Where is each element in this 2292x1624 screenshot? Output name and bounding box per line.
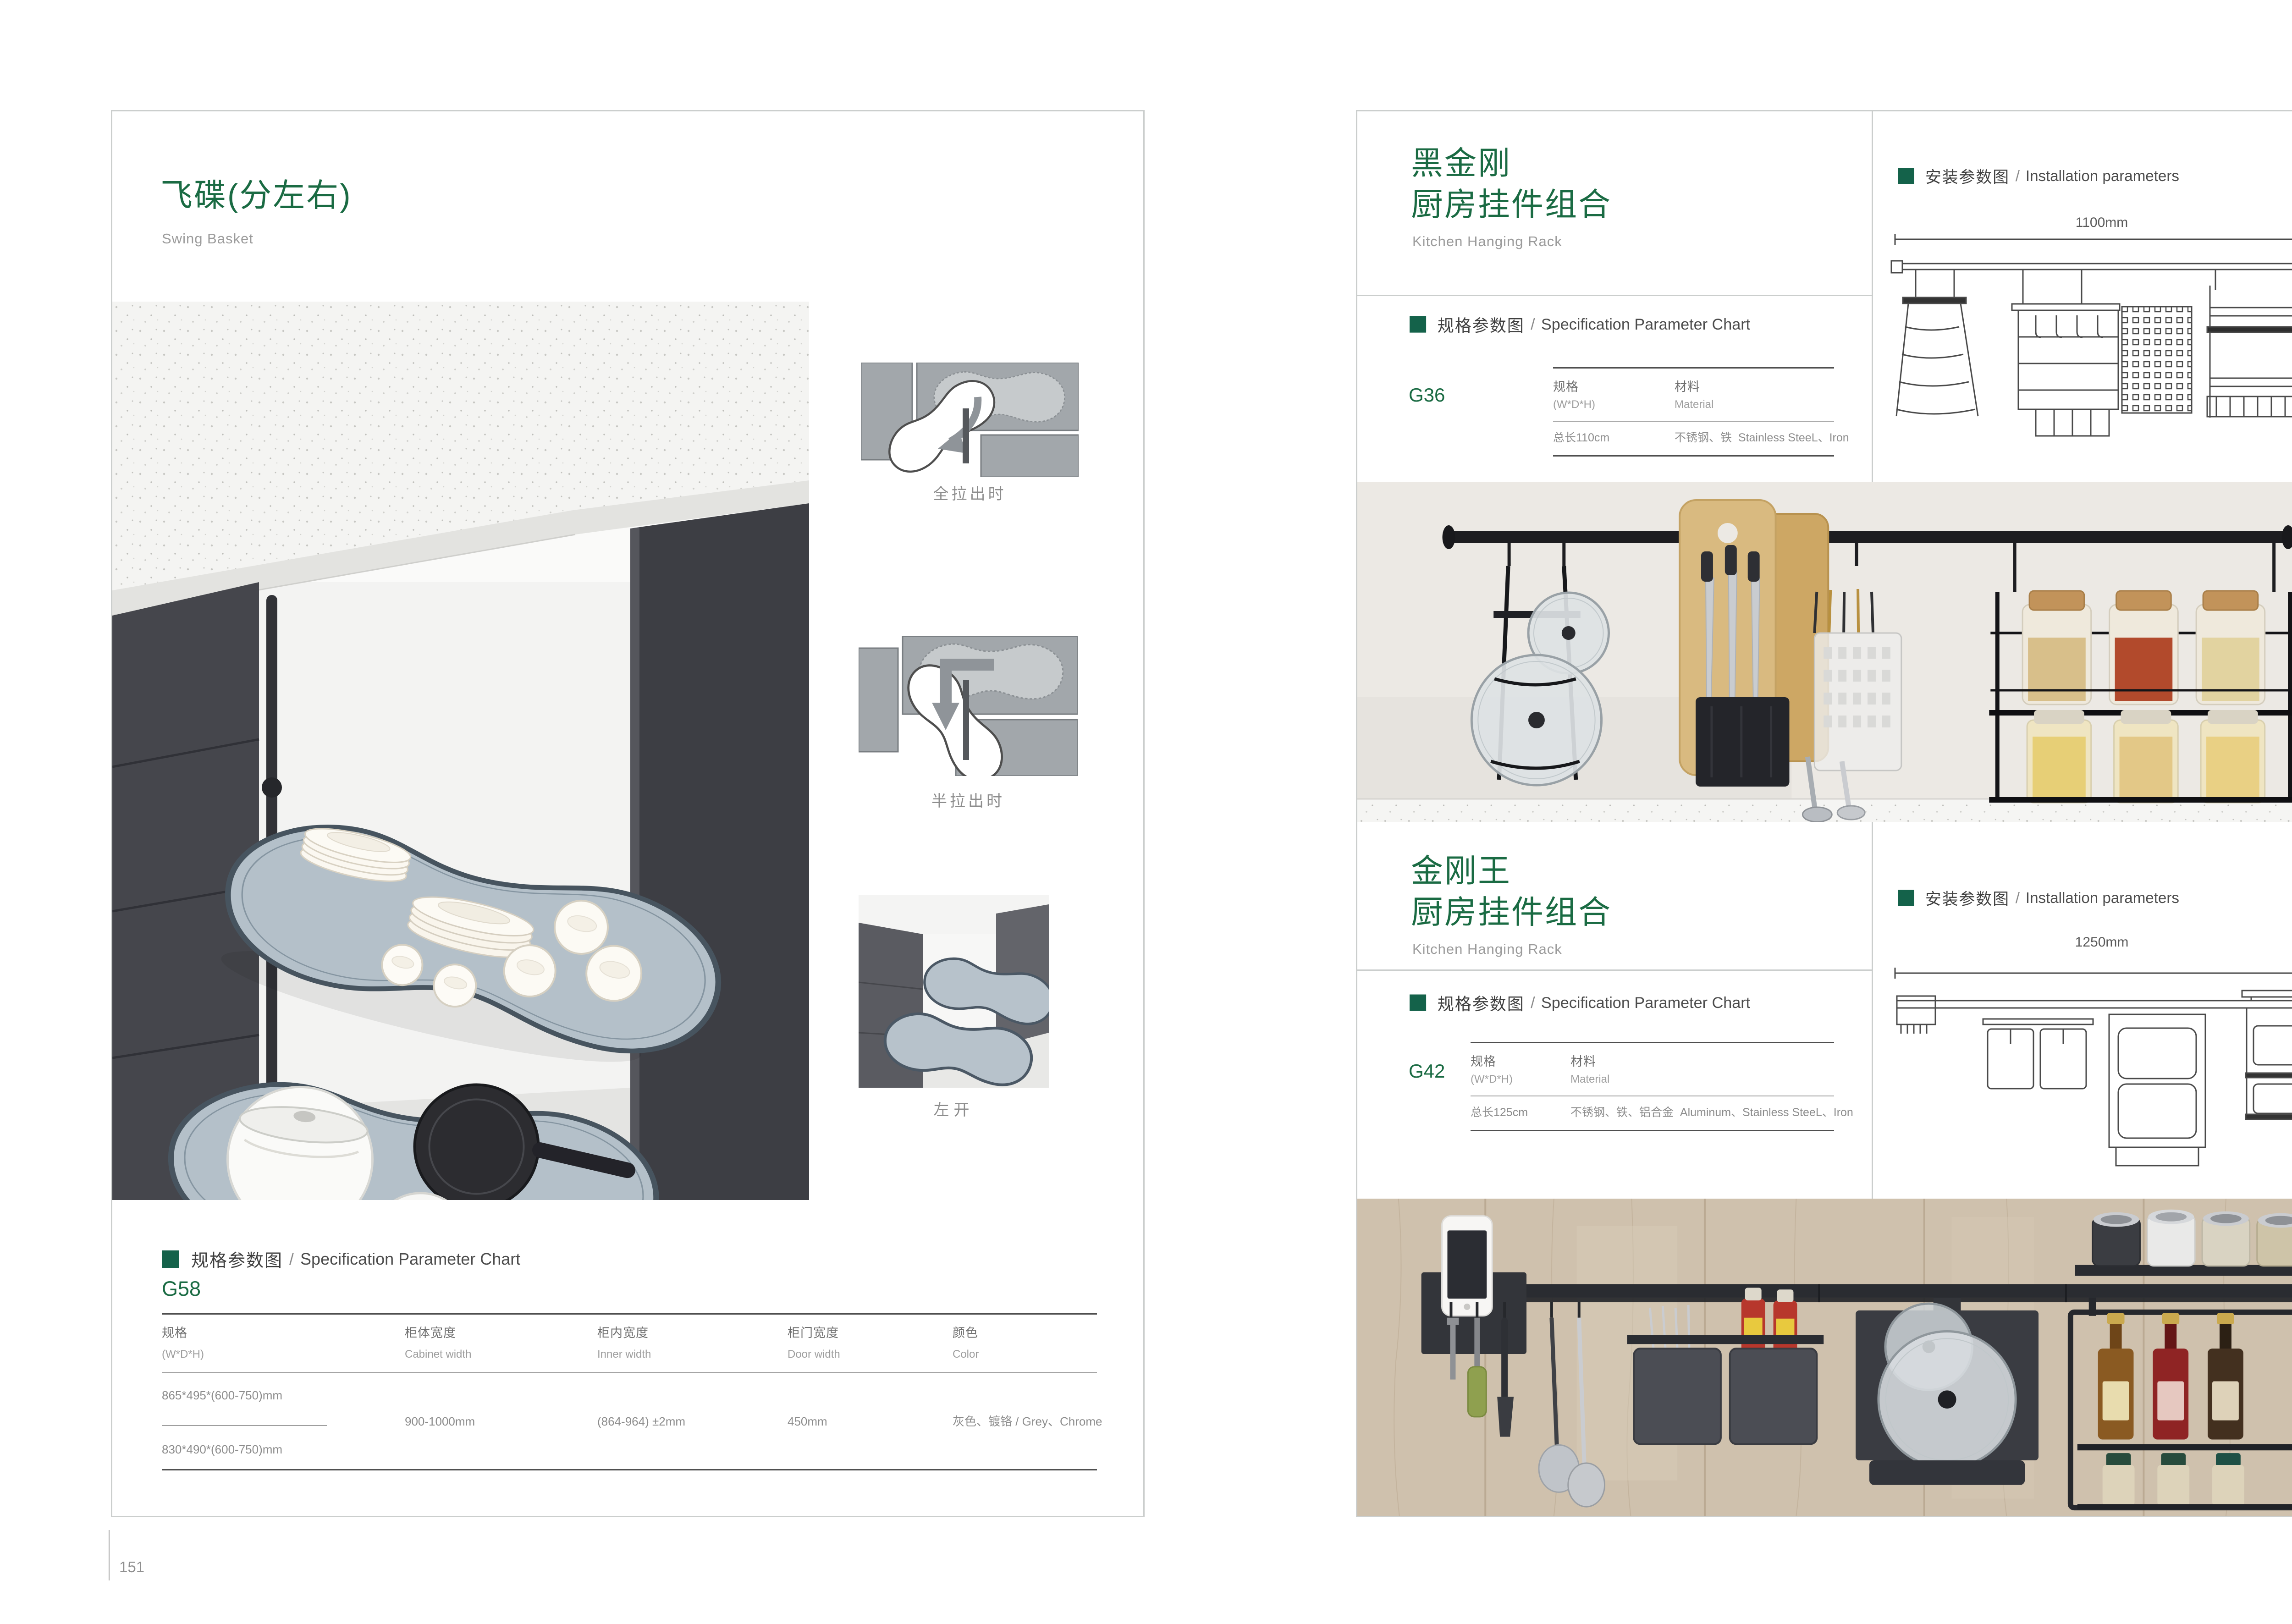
cutting-board-and-knives (1680, 500, 1828, 787)
swing-basket-photo (112, 302, 809, 1200)
installation-diagram-1 (1889, 217, 2292, 473)
product2-title-line2: 厨房挂件组合 (1411, 896, 1612, 928)
col-header-door-en: Door width (788, 1349, 840, 1360)
product1-photo (1357, 482, 2292, 822)
page-number: 151 (119, 1559, 144, 1574)
swing-basket-photo-illustration (112, 302, 809, 1200)
dimension-width-label: 1250mm (2010, 936, 2193, 949)
cell-spec-value: 总长125cm (1471, 1107, 1528, 1118)
table-rule-mid (1471, 1096, 1834, 1096)
section-marker-icon (1410, 994, 1426, 1011)
col-header-color: 颜色 (953, 1327, 978, 1339)
size-divider-line (162, 1425, 327, 1426)
diagram-caption: 左开 (859, 1102, 1049, 1118)
section-separator: / (1531, 993, 1535, 1012)
diagram-half-pullout (859, 636, 1078, 776)
diagram-full-pullout (861, 363, 1079, 477)
model-code: G42 (1409, 1062, 1445, 1081)
table-rule-bottom (162, 1469, 1097, 1470)
table-rule-top (162, 1313, 1097, 1315)
col-header-inner-en: Inner width (597, 1349, 651, 1360)
col-header-material-en: Material (1570, 1074, 1609, 1085)
model-code: G36 (1409, 385, 1445, 405)
table-rule-mid (162, 1372, 1097, 1373)
row-divider (1357, 295, 1872, 296)
section-separator: / (1531, 315, 1535, 333)
col-header-color-en: Color (953, 1349, 979, 1360)
section-separator: / (2016, 889, 2020, 907)
table-rule-bottom (1471, 1130, 1834, 1131)
section-separator: / (2016, 167, 2020, 185)
diagram-caption: 全拉出时 (861, 486, 1079, 502)
product2-photo (1357, 1199, 2292, 1516)
col-header-spec: 规格 (162, 1327, 187, 1339)
page-title: 飞碟(分左右) (160, 179, 352, 211)
cell-cabinet-width: 900-1000mm (405, 1415, 475, 1427)
cell-spec-value: 总长110cm (1553, 432, 1609, 444)
section-title-en: Specification Parameter Chart (1541, 315, 1750, 333)
product2-title-line1: 金刚王 (1411, 855, 1511, 887)
cell-material: 不锈钢、铁、铝合金 Aluminum、Stainless SteeL、Iron (1570, 1107, 1853, 1118)
section-title-cn: 规格参数图 (1438, 991, 1525, 1014)
section-title-cn: 安装参数图 (1925, 164, 2010, 187)
col-header-material: 材料 (1675, 381, 1700, 393)
diagram-caption: 半拉出时 (859, 793, 1078, 809)
col-header-spec: 规格 (1553, 381, 1579, 393)
section-title-en: Installation parameters (2026, 167, 2179, 185)
product2-subtitle: Kitchen Hanging Rack (1412, 942, 1562, 956)
col-header-spec-en: (W*D*H) (162, 1349, 204, 1360)
table-rule-top (1471, 1042, 1834, 1043)
section-separator: / (289, 1250, 294, 1269)
section-title-en: Installation parameters (2026, 889, 2179, 907)
cell-material: 不锈钢、铁 Stainless SteeL、Iron (1675, 432, 1849, 444)
section-marker-icon (162, 1250, 179, 1268)
section-marker-icon (1898, 890, 1914, 906)
cell-inner-width: (864-964) ±2mm (597, 1415, 685, 1427)
col-header-spec-en: (W*D*H) (1553, 399, 1595, 410)
page-right: 黑金刚 厨房挂件组合 Kitchen Hanging Rack 规格参数图 / … (1356, 110, 2292, 1517)
model-code: G58 (162, 1278, 201, 1299)
page-number-line (109, 1530, 110, 1580)
product1-title-line2: 厨房挂件组合 (1411, 188, 1612, 220)
section-title-en: Specification Parameter Chart (300, 1250, 520, 1269)
cell-color: 灰色、镀铬 / Grey、Chrome (953, 1415, 1102, 1427)
sauce-bottles (2098, 1313, 2243, 1440)
table-rule-bottom (1553, 455, 1834, 457)
table-rule-mid (1553, 421, 1834, 422)
spec-section-header: 规格参数图 / Specification Parameter Chart (1410, 991, 1750, 1014)
section-title-cn: 规格参数图 (1438, 312, 1525, 336)
catalog-spread: 飞碟(分左右) Swing Basket (0, 0, 2292, 1624)
spice-rack (1989, 591, 2292, 803)
render-left-open (859, 895, 1049, 1088)
col-header-inner: 柜内宽度 (597, 1327, 649, 1339)
col-header-cabinet: 柜体宽度 (405, 1327, 456, 1339)
installation-diagram-2 (1889, 950, 2292, 1189)
section-title-cn: 规格参数图 (191, 1246, 283, 1272)
page-left: 飞碟(分左右) Swing Basket (111, 110, 1145, 1517)
column-divider (1872, 111, 1873, 482)
product1-subtitle: Kitchen Hanging Rack (1412, 234, 1562, 248)
col-header-door: 柜门宽度 (788, 1327, 839, 1339)
install-section-header: 安装参数图 / Installation parameters (1898, 164, 2179, 187)
install-section-header: 安装参数图 / Installation parameters (1898, 886, 2179, 909)
spice-jars (2103, 1453, 2244, 1506)
section-title-en: Specification Parameter Chart (1541, 993, 1750, 1012)
spec-section-header: 规格参数图 / Specification Parameter Chart (162, 1246, 520, 1272)
section-marker-icon (1410, 316, 1426, 332)
col-header-spec: 规格 (1471, 1056, 1496, 1068)
spice-tins (2093, 1210, 2292, 1266)
cell-door-width: 450mm (788, 1415, 827, 1427)
row-divider (1357, 969, 1872, 971)
col-header-spec-en: (W*D*H) (1471, 1074, 1513, 1085)
cell-size-b: 830*490*(600-750)mm (162, 1443, 282, 1455)
column-divider (1872, 822, 1873, 1199)
section-title-cn: 安装参数图 (1925, 886, 2010, 909)
product1-title-line1: 黑金刚 (1411, 147, 1511, 179)
page-subtitle: Swing Basket (162, 231, 253, 246)
col-header-cabinet-en: Cabinet width (405, 1349, 471, 1360)
section-marker-icon (1898, 168, 1914, 184)
cell-size-a: 865*495*(600-750)mm (162, 1389, 282, 1401)
col-header-material: 材料 (1570, 1056, 1596, 1068)
spec-section-header: 规格参数图 / Specification Parameter Chart (1410, 312, 1750, 336)
table-rule-top (1553, 367, 1834, 369)
lid-holder (1856, 1298, 2039, 1485)
col-header-material-en: Material (1675, 399, 1713, 410)
